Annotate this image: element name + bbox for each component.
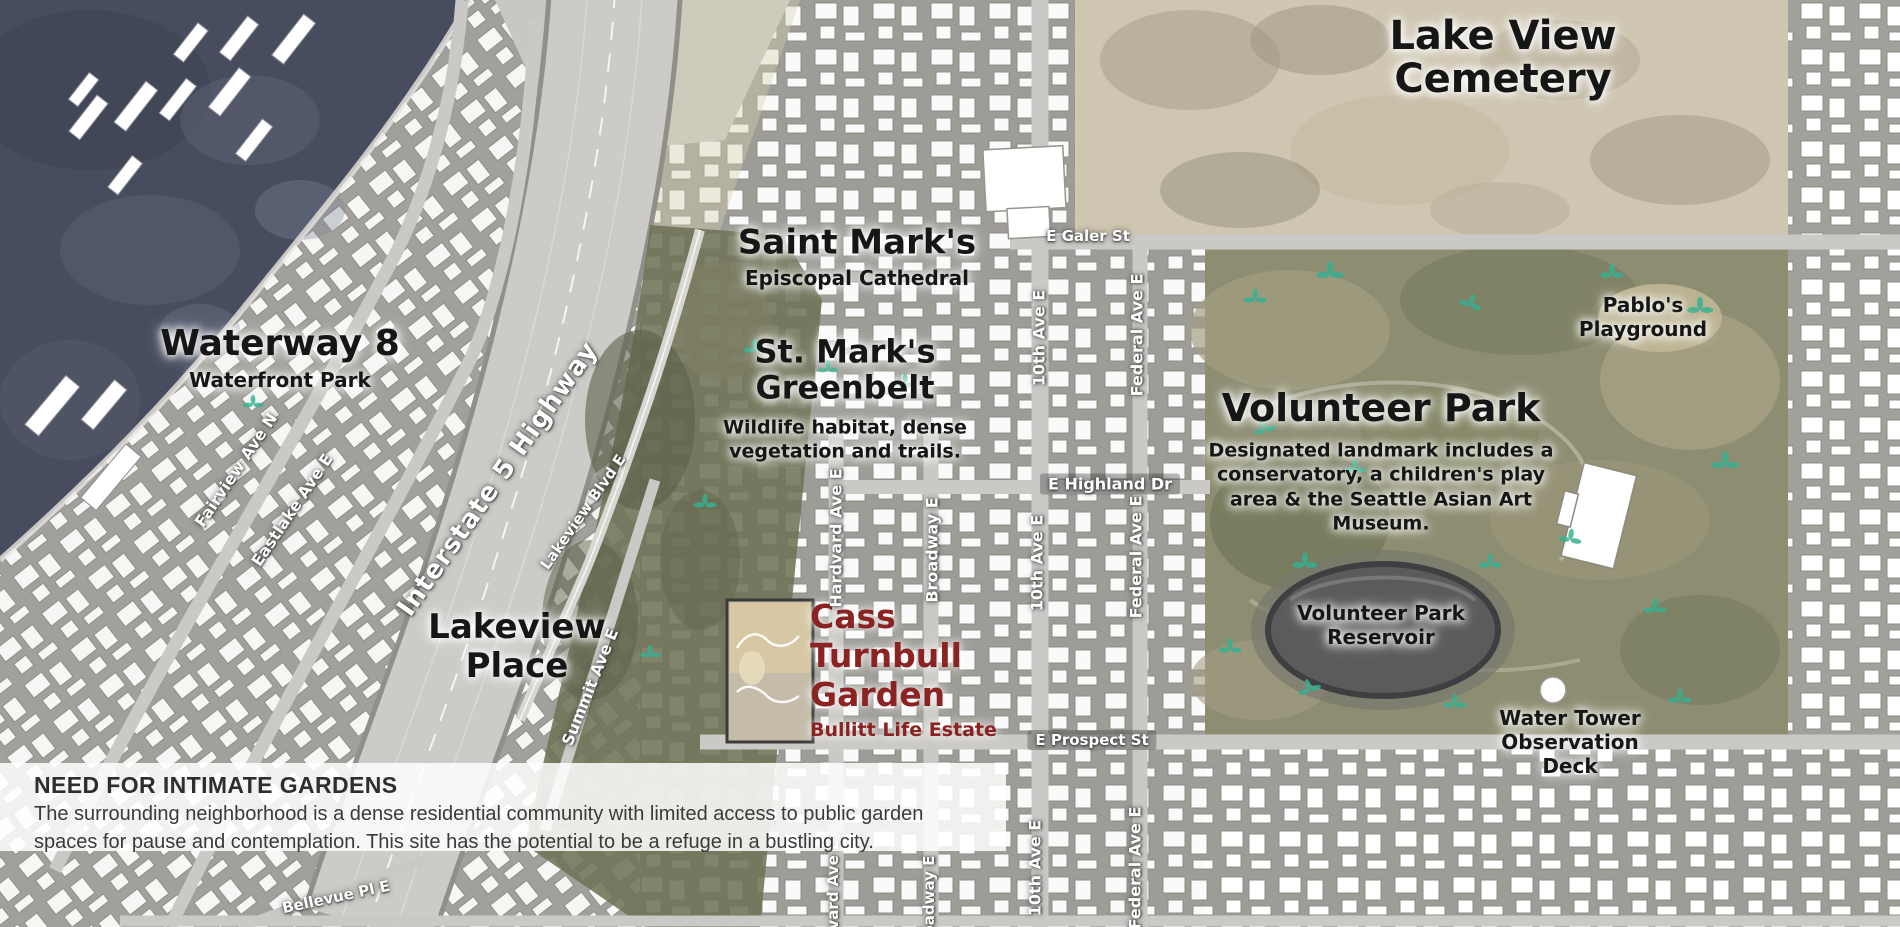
label-volunteer-park-desc: Designated landmark includes a conservat…	[1209, 438, 1554, 535]
street-federal-ave-e-south: Federal Ave E	[1126, 807, 1145, 927]
label-cass-turnbull-garden: Cass Turnbull Garden Bullitt Life Estate	[810, 598, 997, 741]
street-10th-ave-e-south: 10th Ave E	[1026, 820, 1045, 916]
label-lake-view-cemetery: Lake View Cemetery	[1389, 15, 1616, 101]
label-st-marks-greenbelt: St. Mark's Greenbelt	[755, 334, 936, 407]
label-pablos-playground: Pablo's Playground	[1579, 293, 1707, 341]
street-10th-ave-e-mid: 10th Ave E	[1028, 515, 1047, 611]
label-bullitt-life-estate: Bullitt Life Estate	[810, 719, 997, 741]
label-greenbelt-desc: Wildlife habitat, dense vegetation and t…	[723, 416, 967, 465]
label-reservoir: Volunteer Park Reservoir	[1297, 601, 1465, 649]
label-episcopal-cathedral: Episcopal Cathedral	[745, 267, 969, 289]
street-federal-ave-e-north: Federal Ave E	[1128, 274, 1147, 397]
label-saint-marks: Saint Mark's	[738, 224, 976, 261]
street-e-prospect-st: E Prospect St	[1027, 730, 1156, 750]
need-for-intimate-gardens-note: NEED FOR INTIMATE GARDENS The surroundin…	[0, 763, 1006, 851]
street-broadway-e-south: Broadway E	[920, 856, 938, 927]
label-waterway-8: Waterway 8	[160, 324, 400, 364]
label-volunteer-park: Volunteer Park	[1222, 388, 1541, 430]
street-federal-ave-e-mid: Federal Ave E	[1127, 496, 1146, 619]
street-harvard-ave-e: Hardvard Ave E	[827, 468, 846, 607]
label-waterfront-park: Waterfront Park	[189, 369, 371, 391]
note-body: The surrounding neighborhood is a dense …	[34, 801, 979, 856]
street-broadway-e: Broadway E	[923, 497, 942, 602]
street-e-galer-st: E Galer St	[1046, 227, 1130, 245]
label-lakeview-place: Lakeview Place	[428, 608, 606, 686]
garden-site-parcel	[727, 600, 813, 742]
note-heading: NEED FOR INTIMATE GARDENS	[34, 772, 1006, 799]
street-10th-ave-e-north: 10th Ave E	[1030, 290, 1049, 386]
label-water-tower: Water Tower Observation Deck	[1499, 706, 1640, 778]
water-tower-shape	[1540, 677, 1566, 703]
street-e-highland-dr: E Highland Dr	[1040, 474, 1180, 495]
site-context-map: Lake View Cemetery Waterway 8 Waterfront…	[0, 0, 1900, 927]
